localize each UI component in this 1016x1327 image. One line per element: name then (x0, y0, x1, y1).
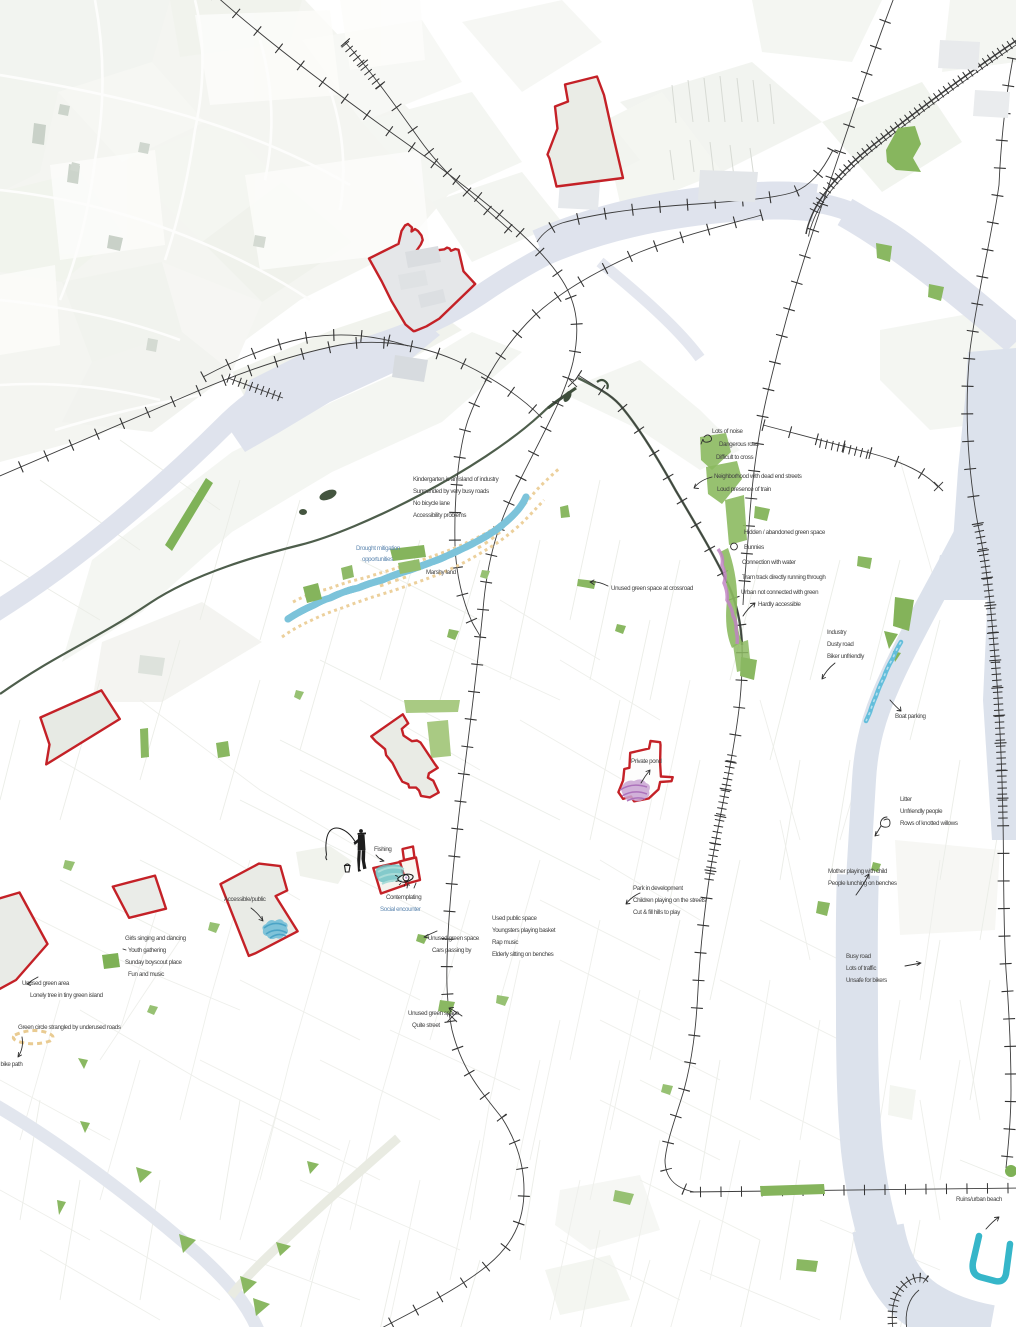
svg-text:Fun and music: Fun and music (128, 971, 164, 978)
svg-text:Youth gathering: Youth gathering (128, 947, 167, 954)
svg-text:Bunnies: Bunnies (744, 544, 764, 551)
svg-text:Lots of noise: Lots of noise (712, 428, 743, 435)
svg-text:Unused green space: Unused green space (428, 935, 480, 942)
svg-text:Connection with water: Connection with water (742, 559, 796, 566)
svg-text:Surrounded by very busy roads: Surrounded by very busy roads (413, 488, 489, 495)
svg-text:Hardly accessible: Hardly accessible (758, 601, 801, 608)
svg-text:Private pond: Private pond (631, 758, 662, 765)
svg-text:Dusty road: Dusty road (827, 641, 854, 648)
svg-text:Biker unfriendly: Biker unfriendly (827, 653, 865, 660)
svg-text:Girls singing and dancing: Girls singing and dancing (125, 935, 187, 942)
svg-text:Difficult to cross: Difficult to cross (716, 454, 754, 461)
svg-text:Ruins/urban beach: Ruins/urban beach (956, 1196, 1003, 1203)
svg-text:Unused green space at crossroa: Unused green space at crossroad (611, 585, 694, 592)
svg-text:Lonely tree in tiny green isla: Lonely tree in tiny green island (30, 992, 104, 999)
svg-text:Industry: Industry (827, 629, 847, 636)
svg-text:Drought mitigation: Drought mitigation (356, 545, 401, 552)
svg-text:Unused green space: Unused green space (408, 1010, 460, 1017)
svg-text:Cut & fill hills to play: Cut & fill hills to play (633, 909, 681, 916)
svg-text:Elderly sitting on benches: Elderly sitting on benches (492, 951, 554, 958)
svg-text:Hidden / abandoned green space: Hidden / abandoned green space (744, 529, 826, 536)
svg-text:Unused green area: Unused green area (22, 980, 70, 987)
svg-text:Accessibility problems: Accessibility problems (413, 512, 466, 519)
svg-text:Contemplating: Contemplating (386, 894, 422, 901)
svg-text:Litter: Litter (900, 796, 912, 803)
svg-text:Park in development: Park in development (633, 885, 683, 892)
svg-text:Kindergarten is an island of i: Kindergarten is an island of industry (413, 476, 500, 483)
svg-text:No bicycle lane: No bicycle lane (413, 500, 451, 507)
svg-text:Green circle strangled by unde: Green circle strangled by underused road… (18, 1024, 121, 1031)
svg-text:opportunities: opportunities (362, 556, 393, 563)
svg-text:Dangerous road: Dangerous road (719, 441, 759, 448)
svg-text:Rap music: Rap music (492, 939, 518, 946)
svg-text:Cars passing by: Cars passing by (432, 947, 472, 954)
svg-text:Tram track directly running th: Tram track directly running through (742, 574, 826, 581)
svg-text:Busy road: Busy road (846, 953, 872, 960)
svg-text:Youngsters playing basket: Youngsters playing basket (492, 927, 556, 934)
svg-text:Fishing: Fishing (374, 846, 392, 853)
svg-text:Mother playing with child: Mother playing with child (828, 868, 888, 875)
svg-text:Used public space: Used public space (492, 915, 538, 922)
svg-text:Urban not connected with green: Urban not connected with green (741, 589, 819, 596)
svg-text:Loud presence of train: Loud presence of train (717, 486, 772, 493)
svg-text:Rows of knotted willows: Rows of knotted willows (900, 820, 958, 827)
svg-text:Quite street: Quite street (412, 1022, 440, 1029)
svg-text:Neighborhood with dead end str: Neighborhood with dead end streets (714, 473, 802, 480)
svg-text:Social encounter: Social encounter (380, 906, 421, 913)
svg-text:Marshy land: Marshy land (426, 569, 457, 576)
svg-text:Unsafe for bikers: Unsafe for bikers (846, 977, 887, 984)
svg-text:Unfriendly people: Unfriendly people (900, 808, 943, 815)
svg-text:Boat parking: Boat parking (895, 713, 926, 720)
svg-text:Children playing on the street: Children playing on the streets (633, 897, 706, 904)
svg-text:Accessible/public: Accessible/public (224, 896, 266, 903)
svg-text:Sunday boyscout place: Sunday boyscout place (125, 959, 183, 966)
svg-text:Lots of traffic: Lots of traffic (846, 965, 876, 972)
svg-text:o bike path: o bike path (0, 1061, 23, 1068)
